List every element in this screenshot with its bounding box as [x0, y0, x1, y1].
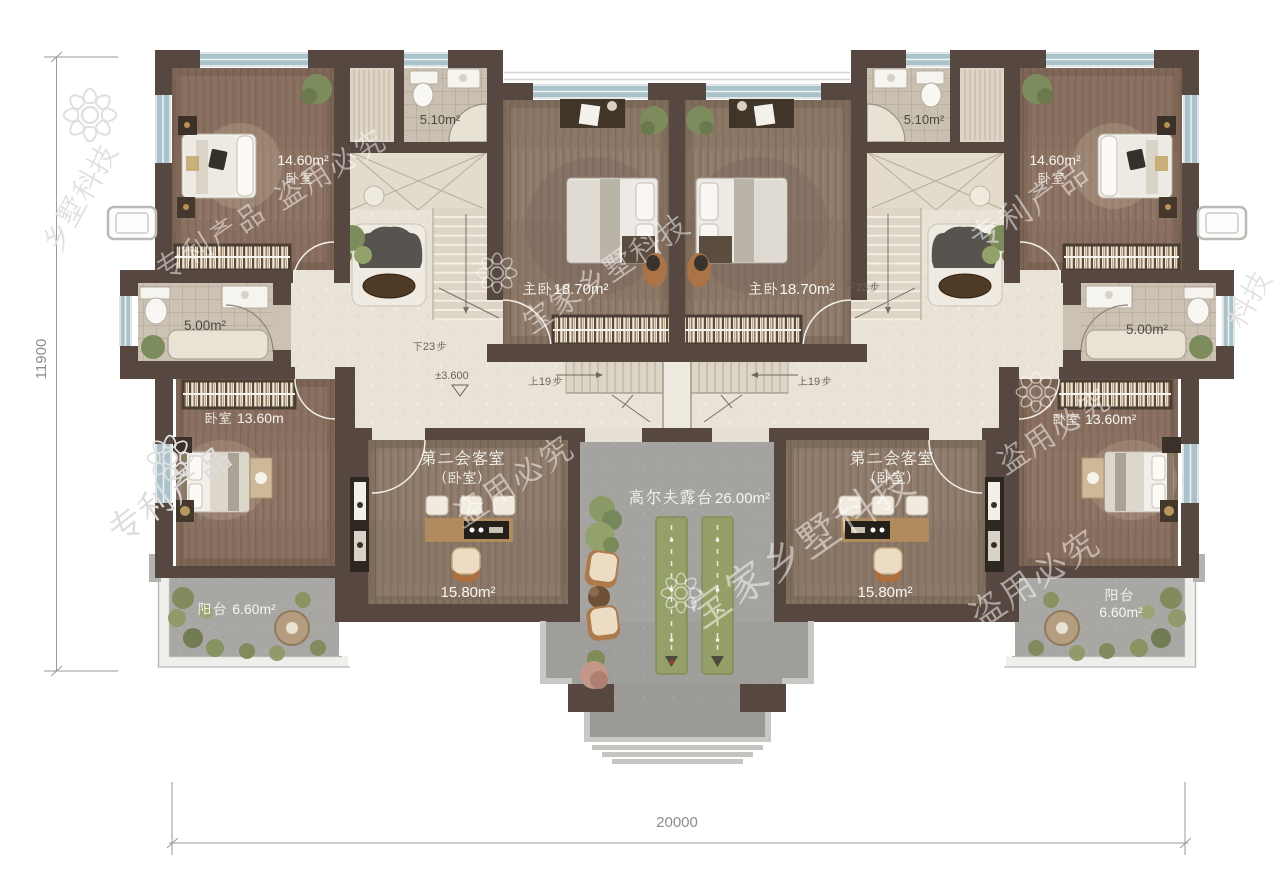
svg-text:20000: 20000 [656, 814, 698, 831]
svg-text:23: 23 [423, 341, 435, 353]
svg-text:18.70m²: 18.70m² [779, 281, 834, 298]
svg-text:15.80m²: 15.80m² [440, 584, 495, 601]
svg-text:11900: 11900 [33, 339, 50, 380]
svg-text:±3.600: ±3.600 [435, 370, 469, 382]
svg-text:26.00m²: 26.00m² [715, 490, 770, 507]
svg-text:6.60m²: 6.60m² [1099, 604, 1143, 620]
svg-text:19: 19 [808, 376, 820, 388]
svg-text:5.00m²: 5.00m² [184, 318, 227, 333]
svg-text:5.10m²: 5.10m² [420, 112, 461, 127]
svg-text:5.00m²: 5.00m² [1126, 322, 1169, 337]
svg-text:14.60m²: 14.60m² [1029, 152, 1081, 168]
svg-text:19: 19 [539, 376, 551, 388]
svg-text:13.60m: 13.60m [237, 410, 284, 426]
svg-text:6.60m²: 6.60m² [232, 601, 276, 617]
svg-text:5.10m²: 5.10m² [904, 112, 945, 127]
svg-text:15.80m²: 15.80m² [857, 584, 912, 601]
svg-text:23: 23 [856, 282, 868, 294]
